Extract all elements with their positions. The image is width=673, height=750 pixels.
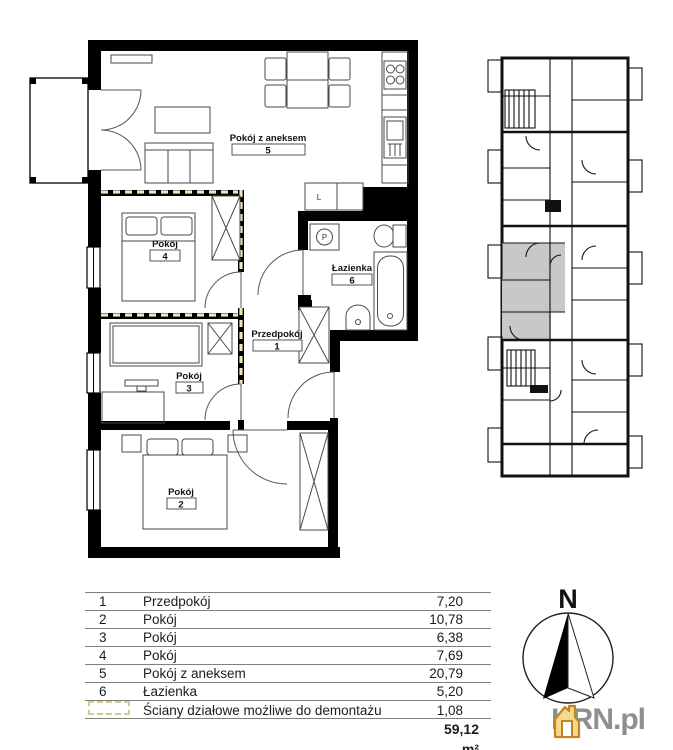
wardrobe-room2 (300, 433, 328, 530)
bathroom-sink (346, 305, 370, 330)
window (87, 247, 100, 510)
svg-text:Łazienka: Łazienka (332, 263, 373, 274)
toilet (374, 225, 406, 247)
table-row: 5 Pokój z aneksem 20,79 (85, 664, 491, 682)
row-area: 7,20 (425, 593, 491, 610)
svg-text:Pokój: Pokój (152, 239, 178, 250)
row-name: Przedpokój (135, 593, 425, 610)
row-number: 1 (85, 593, 135, 610)
interior-doors (205, 250, 303, 484)
kitchen-sink (384, 117, 406, 158)
table-row: 1 Przedpokój 7,20 (85, 592, 491, 610)
balcony-door (101, 90, 141, 170)
room-label-3: Pokój 3 (176, 371, 203, 395)
demountable-area: 1,08 (425, 702, 491, 719)
house-icon (551, 701, 583, 739)
svg-text:1: 1 (274, 342, 280, 353)
wardrobe-room3 (208, 323, 232, 354)
entry-door (288, 372, 334, 418)
demountable-wall-swatch (88, 701, 130, 715)
wardrobe-hall (298, 300, 329, 363)
building-overview-plan (478, 45, 654, 485)
fridge-label: L (317, 193, 322, 202)
room-label-hall: Przedpokój 1 (251, 329, 302, 353)
krn-logo[interactable]: KRN.pl (551, 701, 645, 739)
balcony (30, 78, 88, 183)
svg-text:Pokój: Pokój (176, 371, 202, 382)
svg-text:5: 5 (265, 146, 271, 157)
table-row: 3 Pokój 6,38 (85, 628, 491, 646)
svg-text:6: 6 (349, 276, 354, 287)
svg-text:2: 2 (178, 500, 183, 511)
bed-room3 (110, 323, 202, 366)
desk-room3 (102, 380, 164, 423)
bathtub (374, 252, 407, 330)
north-label: N (558, 584, 578, 614)
table-row-demountable: Ściany działowe możliwe do demontażu 1,0… (85, 700, 491, 718)
room-label-4: Pokój 4 (150, 239, 180, 263)
total-area: 59,12 m² (425, 719, 491, 750)
washing-machine-label: P (322, 233, 327, 242)
compass-needle-light (568, 613, 594, 698)
svg-text:Pokój z aneksem: Pokój z aneksem (230, 133, 307, 144)
wardrobe-room4 (212, 196, 240, 260)
sofa (145, 143, 213, 183)
area-table: 1 Przedpokój 7,20 2 Pokój 10,78 3 Pokój … (85, 592, 491, 739)
apartment-floor-plan: L (0, 0, 460, 585)
svg-text:4: 4 (162, 252, 168, 263)
bed-room2 (122, 435, 247, 529)
tv-shelf (111, 55, 152, 63)
table-row: 6 Łazienka 5,20 (85, 682, 491, 700)
coffee-table (155, 107, 210, 133)
outer-walls (88, 40, 418, 558)
dining-table (265, 52, 350, 108)
table-row-total: 59,12 m² (85, 718, 491, 739)
room-label-living: Pokój z aneksem 5 (230, 133, 307, 157)
table-row: 2 Pokój 10,78 (85, 610, 491, 628)
room-label-bathroom: Łazienka 6 (332, 263, 373, 287)
room-label-2: Pokój 2 (167, 487, 196, 511)
floorplan-page: L (0, 0, 673, 750)
demountable-label: Ściany działowe możliwe do demontażu (135, 702, 425, 719)
svg-text:3: 3 (186, 384, 191, 395)
svg-text:Pokój: Pokój (168, 487, 194, 498)
fridge-cabinet: L (305, 183, 363, 210)
stove (384, 61, 406, 89)
table-row: 4 Pokój 7,69 (85, 646, 491, 664)
svg-text:Przedpokój: Przedpokój (251, 329, 302, 340)
compass: N (505, 580, 635, 710)
washing-machine: P (310, 224, 339, 250)
compass-needle-dark (543, 613, 568, 699)
